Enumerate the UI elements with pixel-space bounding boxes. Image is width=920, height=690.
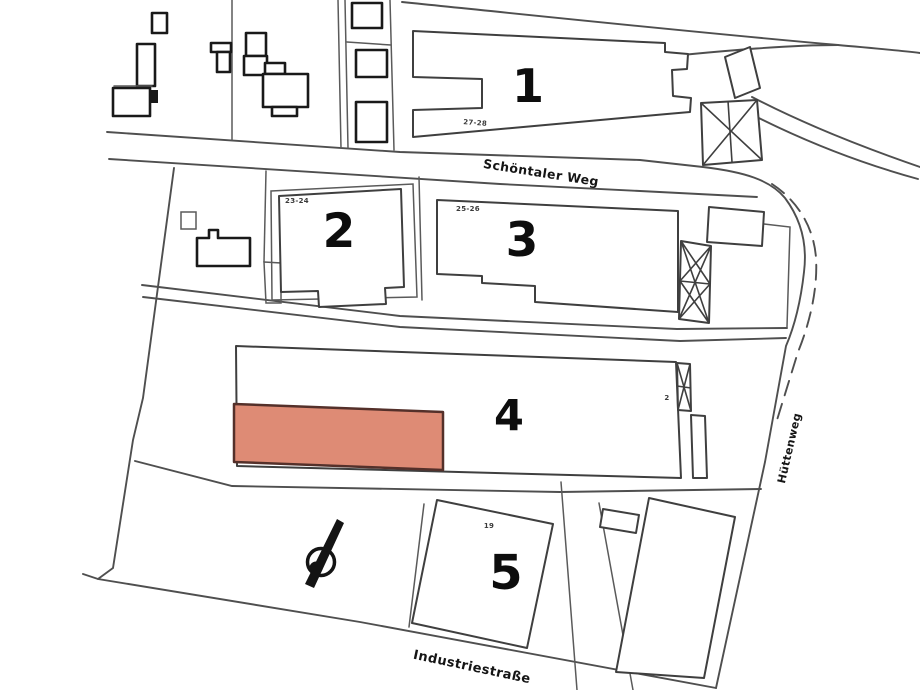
x-bridge-building-4 (677, 363, 707, 478)
west-site-boundary (98, 168, 174, 579)
parcel-line (347, 42, 391, 45)
building-1-number: 1 (512, 59, 544, 113)
small-shed (181, 212, 196, 229)
street-label-huettenweg: Hüttenweg (775, 412, 804, 485)
east-road-upper-edge (752, 97, 920, 167)
small-house (211, 43, 231, 52)
street-label-industriestrasse: Industriestraße (412, 648, 532, 688)
building-1-sublabel: 27-28 (463, 118, 487, 128)
small-house (152, 13, 167, 33)
x-connector-building-3 (679, 241, 711, 323)
parcel-line (419, 177, 422, 300)
house-with-chimney (197, 230, 250, 266)
small-building-southeast (600, 509, 639, 533)
schoentaler-weg-lower-edge (109, 159, 757, 197)
parcel-line (338, 0, 341, 148)
parcel-line (764, 224, 790, 327)
highlight-stroke-group (234, 404, 443, 470)
building-5-number: 5 (489, 545, 522, 601)
building-4-east-stub (691, 415, 707, 478)
building-5-footprint (412, 500, 553, 648)
site-plan-svg: 1 2 3 4 5 27-28 23-24 25-26 2 19 Schönta… (0, 0, 920, 690)
parcel-line (264, 171, 266, 262)
house-complex-part (272, 107, 297, 116)
east-road-lower-edge (743, 110, 918, 179)
parcel-line (390, 0, 394, 150)
building-3-sublabel: 25-26 (456, 205, 480, 213)
compass-hub (310, 562, 323, 575)
building-4-number: 4 (494, 391, 524, 441)
building-2-sublabel: 23-24 (285, 197, 309, 205)
tilted-shed-right-of-1 (725, 47, 760, 98)
highlighted-area (234, 404, 443, 470)
strip-building (356, 50, 387, 77)
house-complex-part (246, 33, 266, 56)
building-northeast-of-3 (707, 207, 764, 246)
x-braced-structure-top-right (701, 100, 762, 165)
building-3-footprint (437, 200, 678, 312)
building-3-number: 3 (506, 213, 539, 268)
small-house (137, 44, 155, 86)
small-house (113, 88, 150, 116)
parcel-line (345, 0, 348, 148)
scanned-site-plan: 1 2 3 4 5 27-28 23-24 25-26 2 19 Schönta… (0, 0, 920, 690)
building-2-number: 2 (323, 204, 356, 259)
strip-building (356, 102, 387, 142)
house-complex-part (263, 74, 308, 107)
building-5-sublabel: 19 (484, 522, 494, 530)
strip-building (352, 3, 382, 28)
building-1-footprint (413, 31, 691, 137)
small-house (217, 52, 230, 72)
house-complex-part (265, 63, 285, 74)
house-complex-part (244, 56, 267, 75)
building-4-sublabel: 2 (664, 394, 669, 402)
compass-needle-icon (305, 519, 344, 588)
